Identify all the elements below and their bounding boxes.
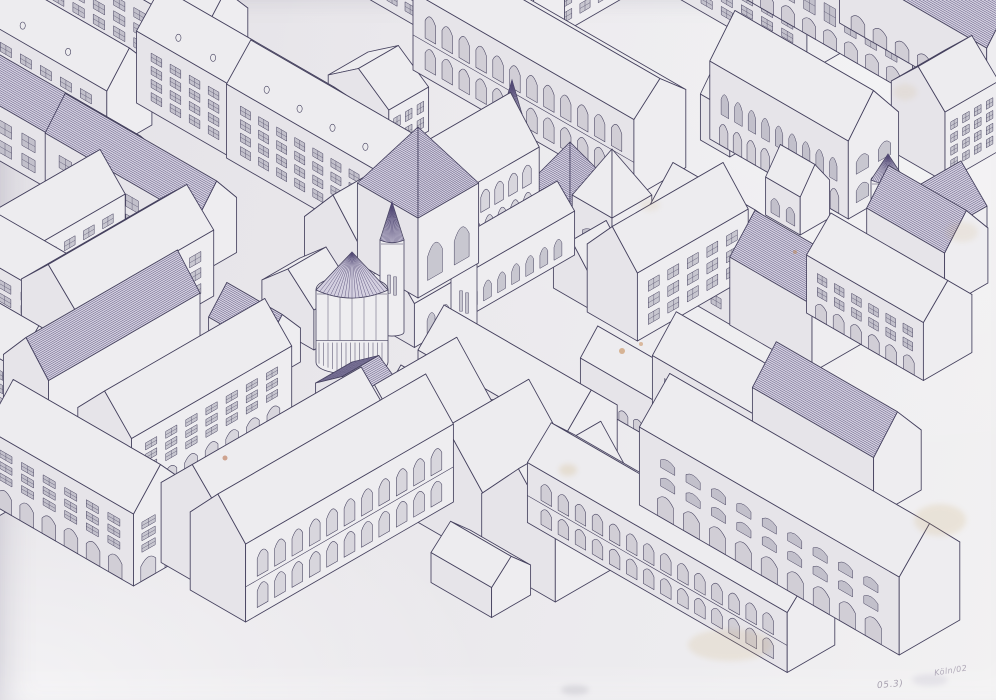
paper-stain (559, 464, 577, 476)
paper-stain (946, 222, 978, 242)
paper-stain (639, 342, 643, 346)
paper-stain (561, 685, 589, 695)
isometric-city-drawing (0, 0, 996, 700)
paper-stain (793, 250, 797, 254)
paper-stain (914, 504, 966, 536)
paper-stain (912, 674, 948, 686)
paper-stain (893, 84, 917, 100)
scanned-drawing-page: Köln/02 05.3) (0, 0, 996, 700)
paper-stain (619, 348, 625, 354)
paper-stain (688, 629, 772, 661)
paper-stain (223, 456, 228, 461)
paper-stain (640, 199, 660, 211)
